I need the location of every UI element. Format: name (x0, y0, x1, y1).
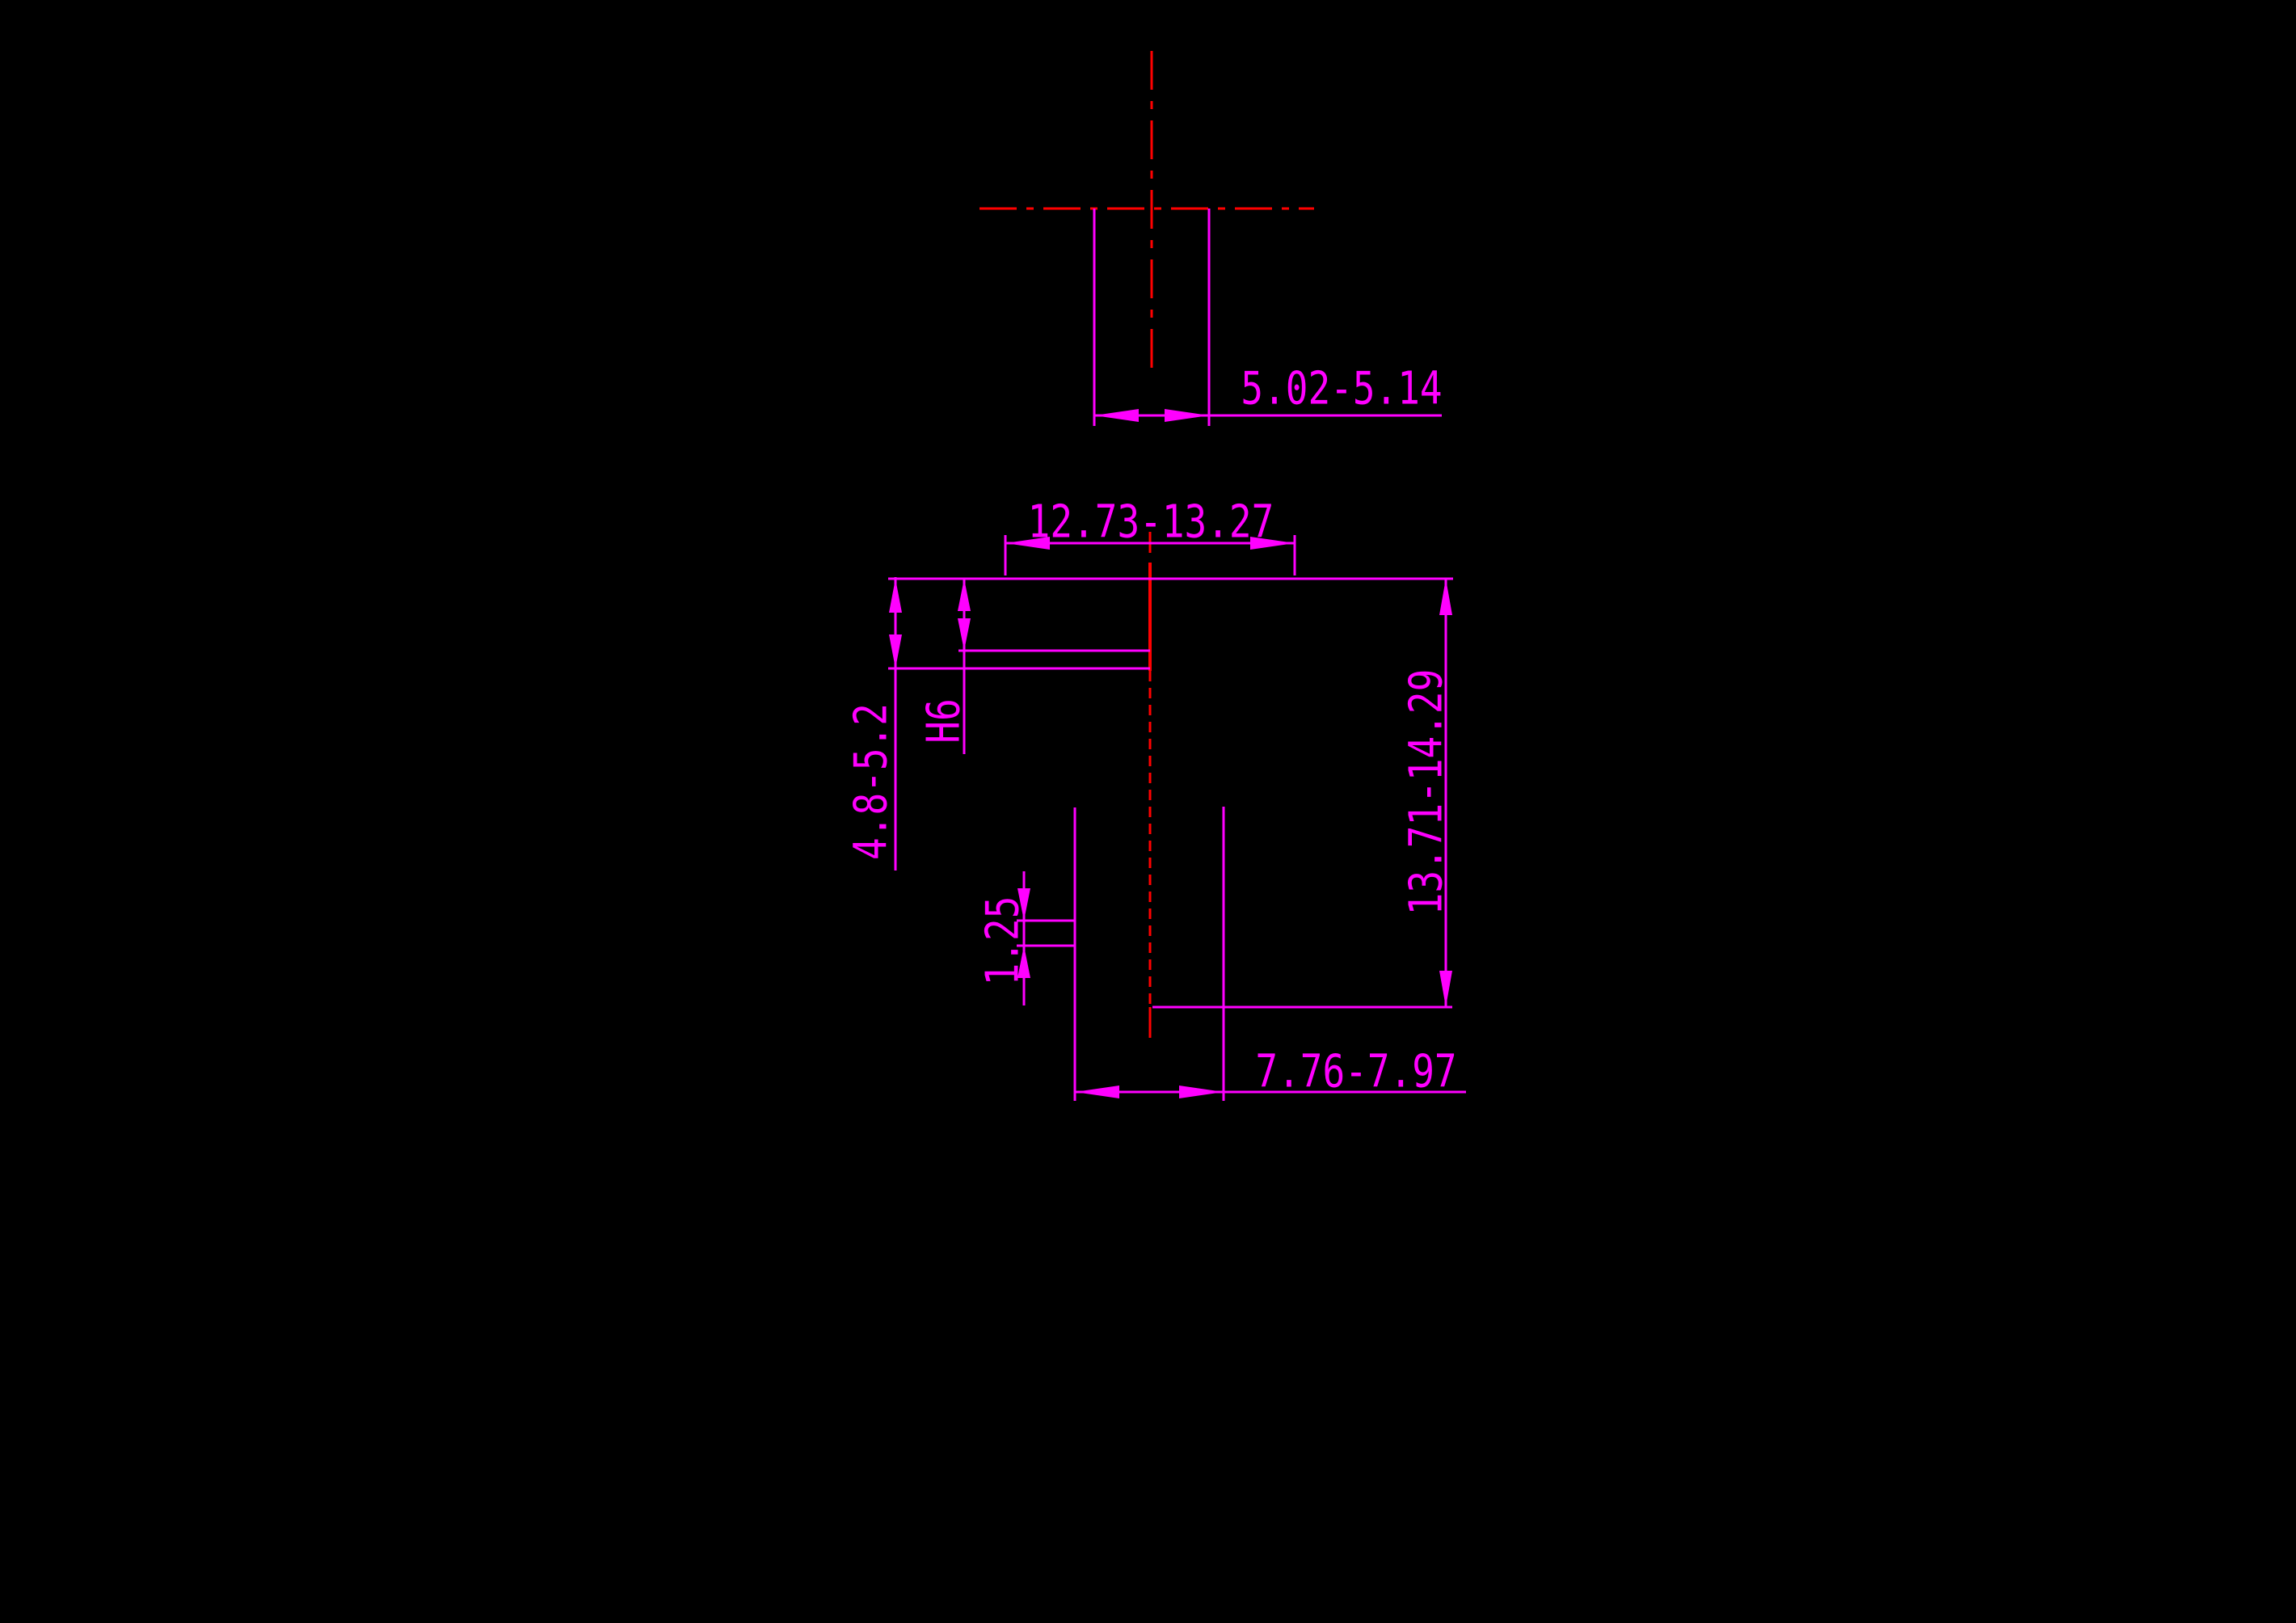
drawing-geometry (0, 0, 2296, 1623)
arrowhead-down (889, 634, 902, 668)
arrowhead-down (1439, 971, 1452, 1007)
dim-label-pin-width: 5.02-5.14 (1241, 365, 1442, 411)
arrowhead-up (958, 579, 971, 611)
dim-label-groove-width: 1.25 (979, 896, 1025, 986)
arrowhead-right (1179, 1086, 1224, 1098)
dim-label-shaft-width: 7.76-7.97 (1255, 1048, 1456, 1094)
cad-drawing-canvas[interactable]: 5.02-5.14 12.73-13.27 4.8-5.2 H6 1.25 13… (0, 0, 2296, 1623)
dim-label-head-height: 4.8-5.2 (848, 703, 893, 860)
arrowhead-left (1075, 1086, 1119, 1098)
dim-label-bore-fit: H6 (921, 698, 966, 743)
arrowhead-right (1165, 409, 1209, 422)
front-view-part-outline (888, 579, 1453, 1101)
dim-label-head-width: 12.73-13.27 (1028, 499, 1274, 544)
arrowhead-up (889, 579, 902, 613)
arrowhead-up (1439, 579, 1452, 615)
top-view-centerlines (979, 51, 1314, 368)
arrowhead-left (1094, 409, 1139, 422)
arrowhead-down (958, 618, 971, 651)
dim-label-overall-height: 13.71-14.29 (1403, 669, 1448, 916)
